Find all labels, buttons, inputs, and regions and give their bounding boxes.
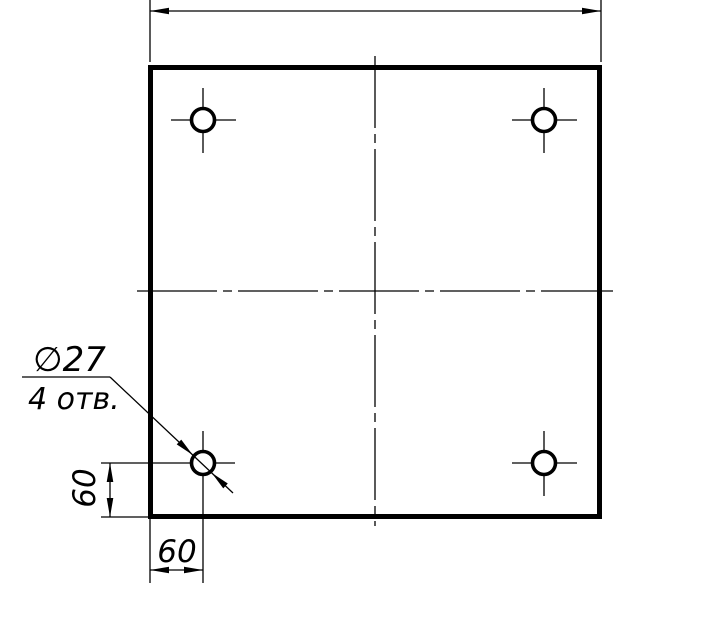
left-dim-arrow-up [107, 463, 114, 482]
top-dimension [150, 0, 601, 62]
hole-bottom-left-circle [192, 452, 215, 475]
top-dim-arrow-left [150, 8, 169, 15]
left-dim-value: 60 [67, 468, 103, 507]
top-dim-arrow-right [582, 8, 601, 15]
hole-bottom-right-circle [533, 452, 556, 475]
hole-diameter-label: ∅27 [33, 340, 106, 380]
hole-top-left-circle [192, 109, 215, 132]
left-dim-arrow-down [107, 498, 114, 517]
drawing-sheet: ∅27 4 отв. 60 60 [0, 0, 713, 631]
technical-drawing: ∅27 4 отв. 60 60 [0, 0, 713, 631]
bottom-dimension: 60 [150, 517, 203, 583]
hole-count-label: 4 отв. [28, 382, 120, 417]
bottom-dim-value: 60 [157, 534, 196, 570]
left-dimension: 60 [67, 463, 150, 517]
hole-top-right-circle [533, 109, 556, 132]
